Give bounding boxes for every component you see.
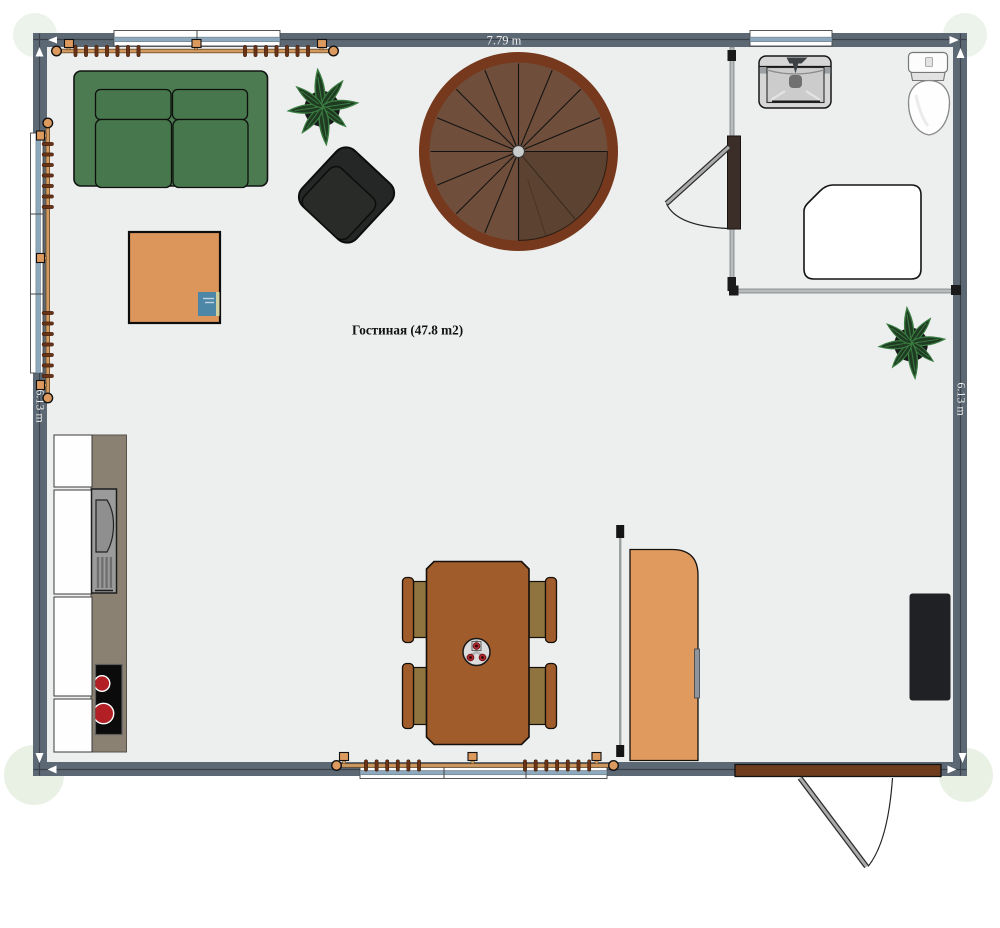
svg-text:7.79 m: 7.79 m [487, 34, 522, 48]
svg-text:6.13 m: 6.13 m [955, 382, 969, 416]
svg-text:Гостиная (47.8 m2): Гостиная (47.8 m2) [352, 323, 463, 338]
